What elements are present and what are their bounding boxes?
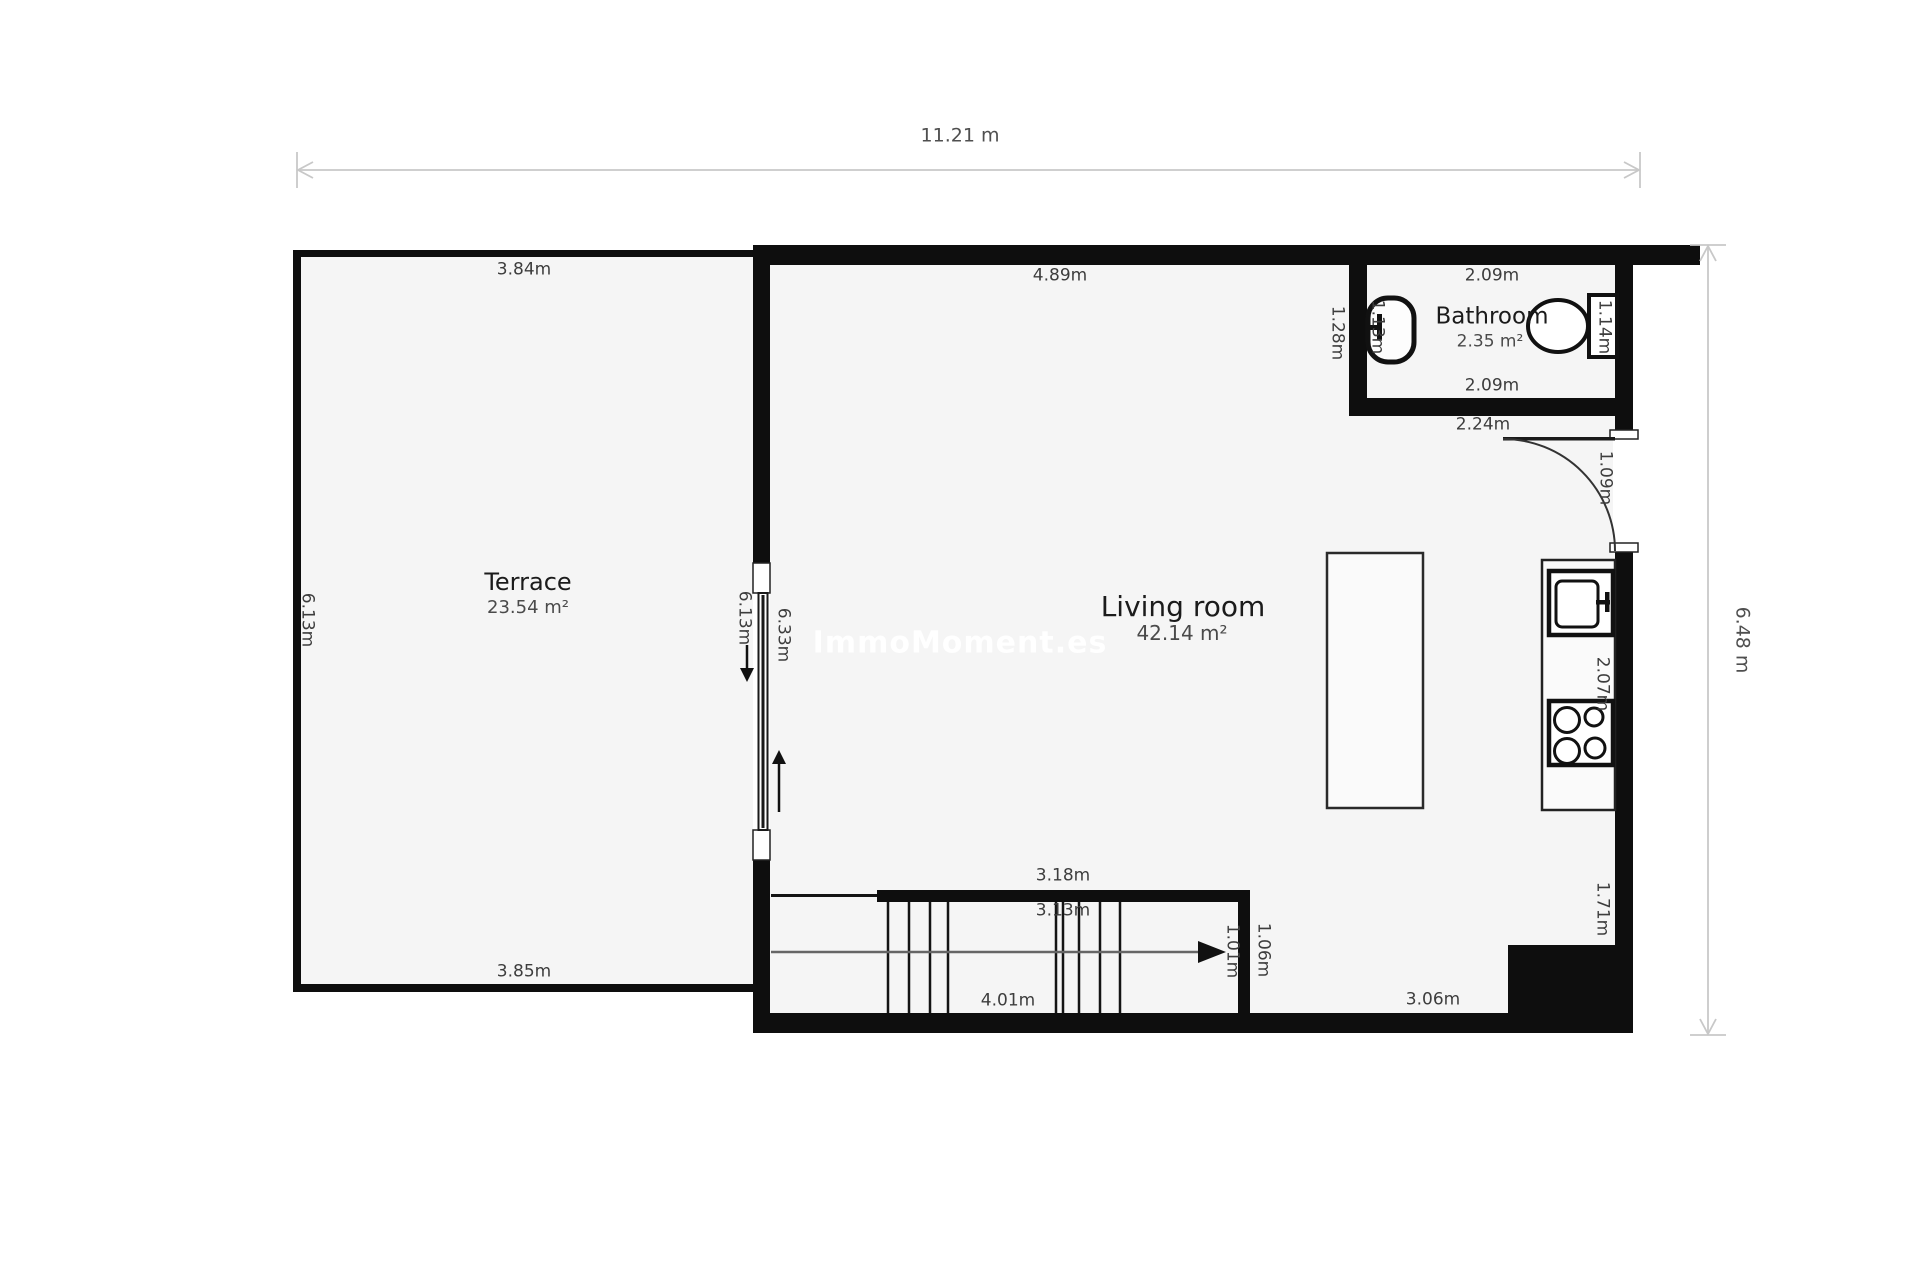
dim-stairs-top-inner: 3.13m bbox=[1036, 903, 1090, 920]
separation-wall-lower bbox=[753, 860, 770, 1033]
dim-terrace-right: 6.13m bbox=[736, 591, 753, 645]
dim-bathroom-bottom: 2.09m bbox=[1465, 378, 1519, 395]
dim-stairs-right-outer: 1.06m bbox=[1255, 923, 1272, 977]
dim-stairs-right-inner: 1.01m bbox=[1224, 924, 1241, 978]
dim-bathroom-left-inner: 1.13m bbox=[1369, 300, 1386, 354]
dim-total-height: 6.48 m bbox=[1733, 607, 1752, 674]
right-wall-lower bbox=[1615, 550, 1633, 1013]
dim-terrace-bottom: 3.85m bbox=[497, 964, 551, 981]
bathroom-bottom-wall bbox=[1349, 398, 1633, 416]
dim-terrace-top: 3.84m bbox=[497, 262, 551, 279]
dim-kitchen-counter: 2.07m bbox=[1594, 657, 1611, 711]
main-bottom-wall bbox=[753, 1013, 1633, 1033]
sliding-door-frame-bottom bbox=[753, 830, 770, 860]
living-room-name: Living room bbox=[1101, 593, 1266, 621]
main-top-wall bbox=[753, 245, 1700, 265]
terrace-bottom-wall bbox=[293, 984, 770, 992]
floor-plan-page: ImmoMoment.es 11.21 m 6.48 m Terrace 23.… bbox=[0, 0, 1920, 1280]
bathroom-area: 2.35 m² bbox=[1457, 334, 1524, 351]
bathroom-left-wall bbox=[1349, 263, 1367, 416]
overall-width-dimension-line bbox=[297, 152, 1640, 188]
stairs-top-edge bbox=[771, 894, 877, 897]
dim-living-right-lower: 1.71m bbox=[1594, 882, 1611, 936]
dim-stairs-top-outer: 3.18m bbox=[1036, 868, 1090, 885]
corner-block bbox=[1508, 945, 1633, 1033]
entry-door-opening bbox=[1613, 430, 1635, 552]
watermark: ImmoMoment.es bbox=[813, 626, 1108, 661]
dim-entry-door: 1.09m bbox=[1597, 451, 1614, 505]
sliding-door-frame-top bbox=[753, 563, 770, 593]
dim-terrace-left: 6.13m bbox=[299, 593, 316, 647]
dim-stairs-bottom: 4.01m bbox=[981, 993, 1035, 1010]
separation-wall-upper bbox=[753, 245, 770, 563]
kitchen-island bbox=[1327, 553, 1423, 808]
living-room-area: 42.14 m² bbox=[1136, 623, 1227, 643]
dim-bathroom-wall-below: 2.24m bbox=[1456, 417, 1510, 434]
kitchen-sink-basin bbox=[1556, 581, 1598, 627]
terrace-area: 23.54 m² bbox=[487, 599, 569, 617]
dim-bathroom-right: 1.14m bbox=[1596, 300, 1613, 354]
kitchen-sink-faucet-handle bbox=[1605, 592, 1610, 612]
terrace-top-wall bbox=[293, 250, 753, 257]
dim-bathroom-left: 1.28m bbox=[1329, 306, 1346, 360]
dim-living-top: 4.89m bbox=[1033, 268, 1087, 285]
bathroom-name: Bathroom bbox=[1436, 306, 1549, 329]
dim-living-bottom-right: 3.06m bbox=[1406, 992, 1460, 1009]
dim-living-left: 6.33m bbox=[775, 608, 792, 662]
terrace-name: Terrace bbox=[484, 570, 571, 594]
dim-total-width: 11.21 m bbox=[921, 127, 1000, 146]
terrace-floor bbox=[300, 257, 753, 984]
overall-height-dimension-line bbox=[1690, 245, 1726, 1035]
dim-bathroom-top: 2.09m bbox=[1465, 268, 1519, 285]
